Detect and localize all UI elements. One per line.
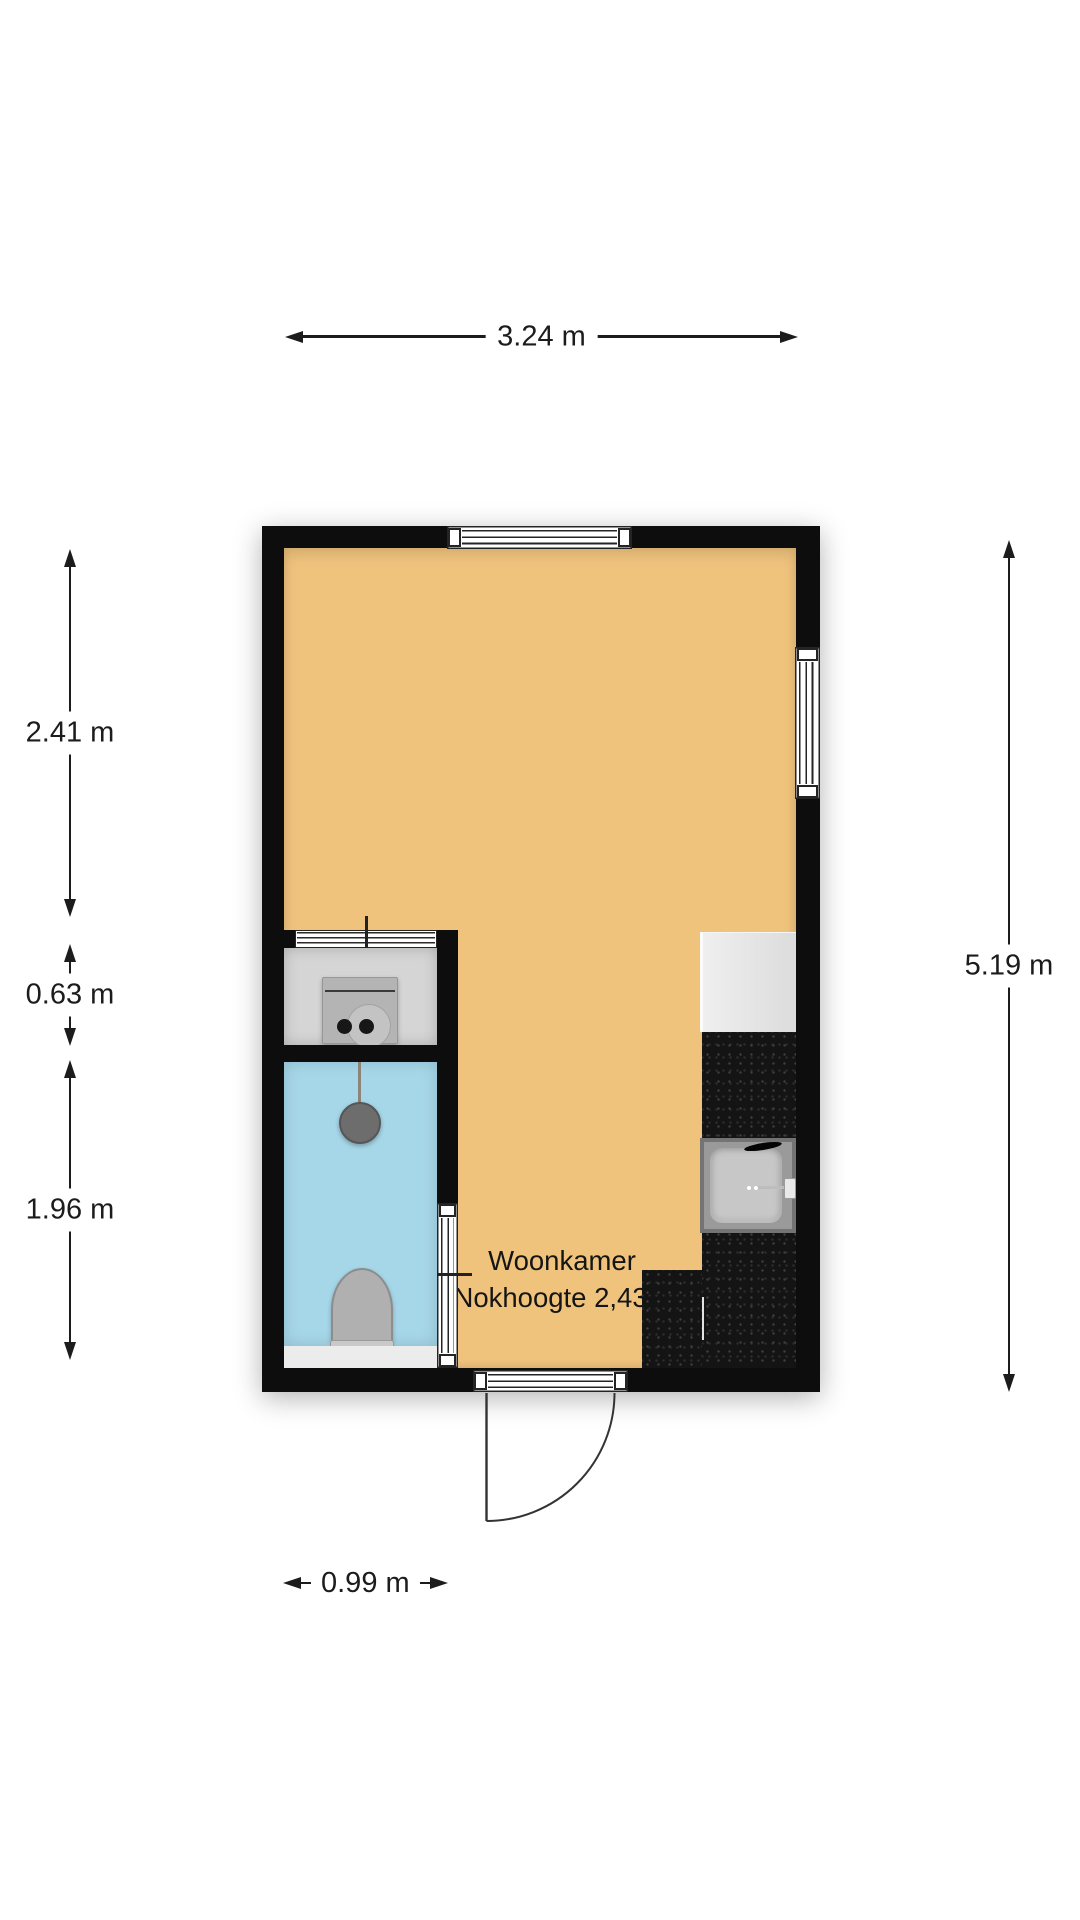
dimension-line	[301, 1582, 311, 1585]
arrowhead-up-icon	[64, 1060, 76, 1078]
window-glass	[462, 530, 617, 545]
window-cap	[618, 528, 631, 547]
faucet-dot	[754, 1186, 758, 1190]
faucet-dot	[747, 1186, 751, 1190]
window-cap	[797, 785, 818, 798]
faucet-icon	[756, 1186, 786, 1189]
sink-icon	[700, 1138, 796, 1233]
appliance-knob	[337, 1019, 352, 1034]
door-panel	[488, 1374, 613, 1388]
shower-icon	[339, 1102, 381, 1144]
entry-door-icon	[473, 1370, 628, 1392]
appliance-icon	[322, 977, 398, 1044]
bathroom-door-icon	[437, 1203, 458, 1368]
arrowhead-right-icon	[430, 1577, 448, 1589]
door-cap	[474, 1372, 487, 1390]
faucet-handle	[784, 1178, 796, 1199]
appliance-detail	[325, 990, 395, 992]
kitchen-cabinet	[700, 932, 796, 1032]
kitchen-counter	[642, 1270, 702, 1368]
dimension-label: 2.41 m	[14, 712, 127, 755]
dimension-bottom-width: 0.99 m	[283, 1565, 448, 1601]
bathroom-threshold	[284, 1346, 437, 1368]
arrowhead-down-icon	[64, 899, 76, 917]
appliance-knob	[359, 1019, 374, 1034]
dimension-left-middle: 0.63 m	[63, 944, 77, 1046]
arrowhead-up-icon	[64, 944, 76, 962]
window-right-icon	[795, 647, 820, 799]
floorplan-canvas: 3.24 m 2.41 m 0.63 m 1.96 m 5.19 m 0.99 …	[0, 0, 1080, 1920]
dimension-top-width: 3.24 m	[285, 330, 798, 343]
door-swing-arc	[480, 1392, 630, 1532]
dimension-right-total: 5.19 m	[1002, 540, 1016, 1392]
arrowhead-down-icon	[64, 1342, 76, 1360]
arrowhead-left-icon	[283, 1577, 301, 1589]
arrowhead-left-icon	[285, 331, 303, 343]
arrowhead-up-icon	[64, 549, 76, 567]
door-cap	[614, 1372, 627, 1390]
door-panel	[441, 1218, 454, 1353]
arrowhead-down-icon	[64, 1028, 76, 1046]
room-bathroom	[284, 1062, 437, 1346]
arrowhead-down-icon	[1003, 1374, 1015, 1392]
dimension-label: 0.63 m	[14, 974, 127, 1017]
room-utility	[284, 948, 437, 1045]
door-cap	[439, 1204, 456, 1217]
dimension-left-lower: 1.96 m	[63, 1060, 77, 1360]
wall-segment	[284, 930, 295, 948]
dimension-label: 3.24 m	[485, 315, 598, 358]
arrowhead-up-icon	[1003, 540, 1015, 558]
dimension-left-upper: 2.41 m	[63, 549, 77, 917]
counter-seam-line	[702, 1297, 704, 1340]
toilet-icon	[331, 1268, 393, 1348]
door-cap	[439, 1354, 456, 1367]
floor-plan: Woonkamer Nokhoogte 2,43m	[262, 526, 820, 1392]
window-top-icon	[447, 526, 632, 549]
dimension-line	[420, 1582, 430, 1585]
wall-segment	[284, 1045, 458, 1062]
dimension-label: 0.99 m	[311, 1567, 420, 1600]
window-cap	[797, 648, 818, 661]
dimension-label: 1.96 m	[14, 1189, 127, 1232]
window-cap	[448, 528, 461, 547]
window-glass	[799, 662, 816, 784]
arrowhead-right-icon	[780, 331, 798, 343]
door-arc	[487, 1393, 615, 1521]
dimension-label: 5.19 m	[953, 945, 1066, 988]
